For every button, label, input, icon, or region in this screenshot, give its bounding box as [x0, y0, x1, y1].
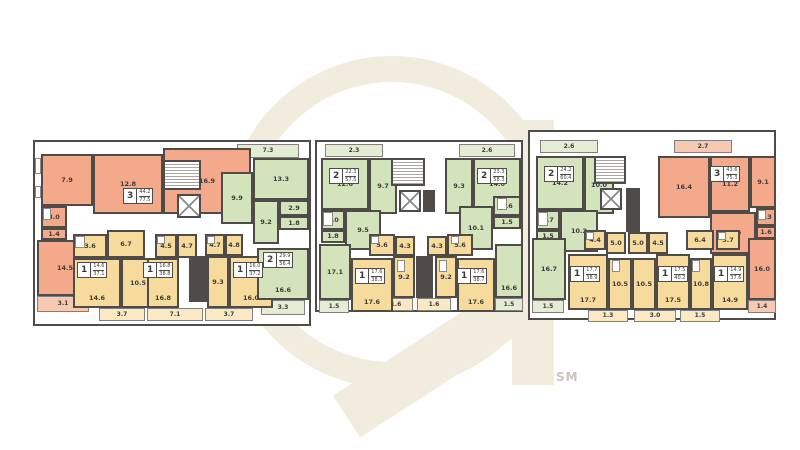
apartment-badge: 117.738.9 [570, 266, 600, 282]
room-area-label: 1.3 [603, 313, 614, 319]
apartment-areas: 23.358.3 [490, 169, 506, 183]
room: 4.7 [177, 234, 197, 258]
room: 12.8 [93, 154, 163, 214]
total-area-value: 40.2 [674, 275, 685, 282]
balcony: 2.3 [325, 144, 383, 157]
room-area-label: 3.7 [224, 312, 235, 318]
apartment-badge: 116.037.2 [233, 262, 263, 278]
total-area-value: 37.2 [249, 271, 260, 278]
total-area-value: 37.6 [730, 275, 741, 282]
bathroom-fixture-icon [538, 212, 548, 226]
bathroom-fixture-icon [43, 208, 51, 220]
room-area-label: 2.6 [564, 144, 575, 150]
apartment-badge: 114.937.6 [714, 266, 744, 282]
room-area-label: 1.8 [288, 220, 300, 227]
apartment-badge: 223.358.3 [477, 168, 507, 184]
living-area-value: 29.9 [279, 253, 290, 261]
apartment-rooms-count: 1 [234, 263, 246, 277]
room-area-label: 17.7 [580, 297, 596, 304]
room: 4.5 [648, 232, 668, 254]
apartment-areas: 24.260.4 [557, 167, 573, 181]
balcony: 3.7 [205, 308, 253, 321]
room-area-label: 2.6 [482, 148, 493, 154]
room-area-label: 9.2 [440, 274, 452, 281]
room-area-label: 1.4 [757, 304, 768, 310]
room-area-label: 17.1 [327, 269, 343, 276]
apartment-badge: 224.260.4 [544, 166, 574, 182]
room-area-label: 9.5 [357, 227, 369, 234]
living-area-value: 14.6 [93, 263, 104, 271]
room-area-label: 16.7 [541, 266, 557, 273]
room-area-label: 5.0 [610, 240, 622, 247]
room: 2.9 [279, 200, 309, 216]
apartment-areas: 14.937.6 [727, 267, 743, 281]
room: 13.3 [253, 158, 309, 200]
apartment-rooms-count: 1 [458, 269, 470, 283]
living-area-value: 17.5 [674, 267, 685, 275]
room-area-label: 9.9 [231, 195, 243, 202]
room: 6.7 [107, 230, 145, 258]
bathroom-fixture-icon [439, 260, 447, 272]
room: 9.1 [750, 156, 776, 208]
bathroom-fixture-icon [371, 236, 379, 244]
room-area-label: 2.7 [698, 144, 709, 150]
balcony: 1.5 [319, 300, 349, 313]
room-area-label: 4.5 [652, 240, 664, 247]
apartment-areas: 16.838.8 [156, 263, 172, 277]
living-area-value: 24.2 [560, 167, 571, 175]
apartment-rooms-count: 3 [711, 167, 723, 181]
balcony: 7.1 [147, 308, 203, 321]
room-area-label: 1.5 [504, 302, 515, 308]
total-area-value: 37.1 [93, 271, 104, 278]
stairs-icon [163, 160, 201, 190]
bathroom-fixture-icon [692, 260, 700, 272]
apartment-rooms-count: 1 [659, 267, 671, 281]
bathroom-fixture-icon [207, 236, 215, 244]
apartment-badge: 117.540.2 [658, 266, 688, 282]
room-area-label: 9.2 [260, 219, 272, 226]
room-area-label: 4.3 [399, 243, 411, 250]
total-area-value: 38.9 [586, 275, 597, 282]
room-area-label: 1.8 [327, 233, 339, 240]
room-area-label: 3.6 [84, 243, 96, 250]
section-right: 2.614.210.03.71.510.22.716.411.29.113.03… [528, 130, 776, 320]
elevator-icon [177, 194, 201, 218]
apartment-areas: 44.277.5 [136, 189, 152, 203]
room-area-label: 10.5 [636, 281, 652, 288]
room: 17.5 [656, 254, 690, 310]
apartment-badge: 116.838.8 [143, 262, 173, 278]
section-left: 7.912.816.93.01.414.53.13.66.714.610.53.… [33, 140, 311, 326]
living-area-value: 17.6 [371, 269, 382, 277]
room-area-label: 10.5 [612, 281, 628, 288]
room-area-label: 1.4 [48, 231, 60, 238]
room-area-label: 9.3 [453, 183, 465, 190]
balcony: 1.6 [417, 298, 451, 311]
bathroom-fixture-icon [718, 232, 726, 240]
room-area-label: 6.7 [120, 241, 132, 248]
room-area-label: 9.3 [212, 279, 224, 286]
bathroom-fixture-icon [75, 236, 85, 248]
bathroom-fixture-icon [451, 236, 459, 244]
apartment-areas: 22.357.5 [342, 169, 358, 183]
room-area-label: 17.6 [364, 299, 380, 306]
apartment-badge: 343.675.3 [710, 166, 740, 182]
total-area-value: 60.4 [560, 175, 571, 182]
room-area-label: 10.5 [130, 280, 146, 287]
balcony: 2.6 [459, 144, 515, 157]
apartment-badge: 117.638.7 [457, 268, 487, 284]
room: 1.5 [493, 216, 521, 229]
apartment-areas: 17.638.3 [368, 269, 384, 283]
room-area-label: 9.7 [377, 183, 389, 190]
living-area-value: 44.2 [139, 189, 150, 197]
room: 16.4 [658, 156, 710, 218]
room: 9.2 [253, 200, 279, 244]
room-area-label: 16.6 [501, 285, 517, 292]
living-area-value: 17.6 [473, 269, 484, 277]
living-area-value: 23.3 [493, 169, 504, 177]
room-area-label: 16.6 [275, 287, 291, 294]
room: 10.5 [632, 258, 656, 310]
room-area-label: 16.4 [676, 184, 692, 191]
room-area-label: 1.5 [329, 304, 340, 310]
room: 4.3 [395, 236, 415, 256]
room-area-label: 1.5 [695, 313, 706, 319]
apartment-areas: 17.638.7 [470, 269, 486, 283]
room-area-label: 13.3 [273, 176, 289, 183]
room: 6.4 [686, 230, 714, 250]
room-area-label: 1.6 [760, 229, 772, 236]
room-area-label: 7.9 [61, 177, 73, 184]
living-area-value: 16.8 [159, 263, 170, 271]
bathroom-fixture-icon [35, 186, 41, 198]
room-area-label: 7.3 [263, 148, 274, 154]
floor-plan-canvas: 7.912.816.93.01.414.53.13.66.714.610.53.… [0, 0, 800, 450]
apartment-rooms-count: 1 [571, 267, 583, 281]
bathroom-fixture-icon [612, 260, 620, 272]
apartment-badge: 114.637.1 [77, 262, 107, 278]
room-area-label: 1.5 [543, 304, 554, 310]
apartment-rooms-count: 1 [144, 263, 156, 277]
balcony: 1.3 [588, 310, 628, 322]
room-area-label: 3.7 [117, 312, 128, 318]
apartment-areas: 14.637.1 [90, 263, 106, 277]
wall-shaft [626, 188, 640, 232]
room-area-label: 4.7 [181, 243, 193, 250]
apartment-areas: 17.540.2 [671, 267, 687, 281]
apartment-rooms-count: 1 [715, 267, 727, 281]
room: 1.4 [41, 228, 67, 240]
room: 11.2 [710, 156, 750, 212]
room: 1.8 [321, 230, 345, 243]
wall-shaft [423, 190, 435, 212]
total-area-value: 58.3 [493, 177, 504, 184]
room-area-label: 16.9 [199, 178, 215, 185]
total-area-value: 75.3 [726, 175, 737, 182]
room-area-label: 14.6 [89, 295, 105, 302]
room: 16.0 [748, 238, 776, 300]
total-area-value: 56.4 [279, 261, 290, 268]
bathroom-fixture-icon [323, 212, 333, 226]
wall-shaft [416, 256, 433, 298]
room-area-label: 3.0 [650, 313, 661, 319]
room-area-label: 14.9 [722, 297, 738, 304]
room: 17.6 [351, 258, 393, 312]
room-area-label: 16.0 [754, 266, 770, 273]
total-area-value: 57.5 [345, 177, 356, 184]
room-area-label: 16.8 [155, 295, 171, 302]
balcony: 3.0 [634, 310, 676, 322]
elevator-icon [399, 190, 421, 212]
elevator-icon [600, 188, 622, 210]
room-area-label: 4.8 [228, 242, 240, 249]
room: 14.2 [536, 156, 584, 210]
balcony: 2.7 [674, 140, 732, 153]
room: 16.7 [532, 238, 566, 300]
apartment-rooms-count: 1 [356, 269, 368, 283]
room: 17.7 [568, 254, 608, 310]
room-area-label: 2.3 [349, 148, 360, 154]
room: 1.8 [279, 216, 309, 230]
room: 12.6 [321, 158, 369, 210]
total-area-value: 38.3 [371, 277, 382, 284]
balcony: 1.5 [495, 298, 523, 311]
balcony: 2.6 [540, 140, 598, 153]
room: 17.6 [457, 258, 495, 312]
room: 16.6 [495, 244, 523, 298]
apartment-areas: 29.956.4 [276, 253, 292, 267]
room-area-label: 4.3 [431, 243, 443, 250]
bathroom-fixture-icon [35, 158, 41, 174]
balcony: 3.7 [99, 308, 145, 321]
living-area-value: 22.3 [345, 169, 356, 177]
room: 9.9 [221, 172, 253, 224]
room: 17.1 [319, 244, 351, 300]
room-area-label: 3.3 [278, 305, 289, 311]
room: 14.9 [712, 254, 748, 310]
balcony: 1.4 [748, 300, 776, 313]
apartment-rooms-count: 2 [545, 167, 557, 181]
apartment-rooms-count: 3 [124, 189, 136, 203]
room-area-label: 9.1 [757, 179, 769, 186]
bathroom-fixture-icon [497, 198, 507, 210]
room-area-label: 17.5 [665, 297, 681, 304]
apartment-badge: 229.956.4 [263, 252, 293, 268]
living-area-value: 14.9 [730, 267, 741, 275]
apartment-rooms-count: 2 [478, 169, 490, 183]
apartment-badge: 344.277.5 [123, 188, 153, 204]
living-area-value: 16.0 [249, 263, 260, 271]
total-area-value: 38.7 [473, 277, 484, 284]
room: 4.8 [225, 234, 243, 256]
room-area-label: 6.4 [694, 237, 706, 244]
room: 4.3 [427, 236, 447, 256]
room: 7.9 [41, 154, 93, 206]
room-area-label: 17.6 [468, 299, 484, 306]
bathroom-fixture-icon [157, 236, 165, 244]
room-area-label: 2.9 [288, 205, 300, 212]
bathroom-fixture-icon [397, 260, 405, 272]
total-area-value: 38.8 [159, 271, 170, 278]
room-area-label: 10.1 [468, 225, 484, 232]
apartment-badge: 222.357.5 [329, 168, 359, 184]
balcony: 1.5 [680, 310, 720, 322]
section-middle: 2.312.69.73.01.89.59.314.02.63.610.11.55… [315, 140, 523, 312]
apartment-rooms-count: 1 [78, 263, 90, 277]
room-area-label: 7.1 [170, 312, 181, 318]
room-area-label: 3.1 [58, 301, 69, 307]
bathroom-fixture-icon [586, 232, 594, 240]
apartment-areas: 16.037.2 [246, 263, 262, 277]
living-area-value: 17.7 [586, 267, 597, 275]
wall-shaft [189, 256, 207, 302]
room-area-label: 9.2 [398, 274, 410, 281]
room-area-label: 14.5 [57, 265, 73, 272]
living-area-value: 43.6 [726, 167, 737, 175]
stairs-icon [391, 158, 425, 186]
apartment-rooms-count: 2 [330, 169, 342, 183]
balcony: 1.5 [532, 300, 564, 313]
room-area-label: 1.5 [501, 219, 513, 226]
apartment-areas: 43.675.3 [723, 167, 739, 181]
room: 5.0 [606, 232, 626, 254]
room-area-label: 5.0 [632, 240, 644, 247]
apartment-areas: 17.738.9 [583, 267, 599, 281]
room: 9.3 [207, 256, 229, 308]
total-area-value: 77.5 [139, 197, 150, 204]
bathroom-fixture-icon [758, 210, 766, 220]
room-area-label: 1.6 [429, 302, 440, 308]
room-area-label: 10.8 [693, 281, 709, 288]
stairs-icon [594, 156, 626, 184]
apartment-rooms-count: 2 [264, 253, 276, 267]
apartment-badge: 117.638.3 [355, 268, 385, 284]
room: 5.0 [628, 232, 648, 254]
room-area-label: 12.8 [120, 181, 136, 188]
